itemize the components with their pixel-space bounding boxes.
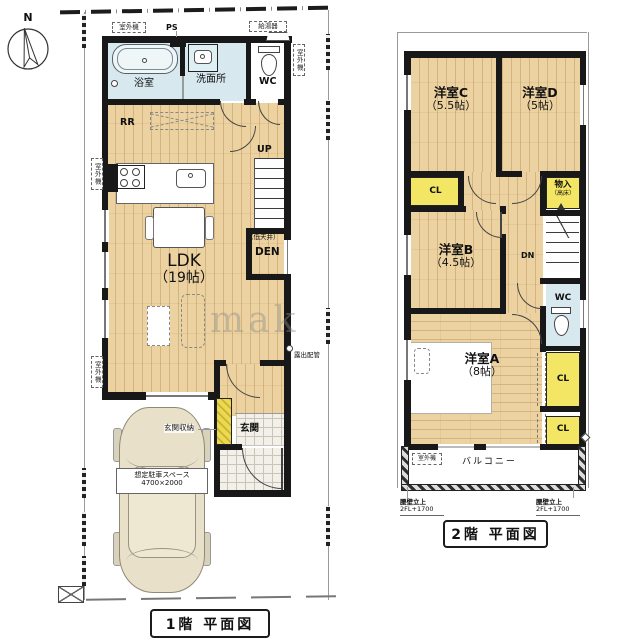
burner-icon — [132, 168, 140, 176]
water-heater-icon — [266, 32, 290, 41]
outdoor-unit-label: 室外機 — [293, 44, 305, 76]
wall — [102, 99, 220, 105]
site-boundary-east-seg — [326, 100, 330, 140]
wall — [500, 234, 506, 314]
wall — [540, 210, 586, 216]
shower-icon — [111, 80, 118, 87]
room-d-line1: 洋室D — [504, 86, 576, 100]
stair-arrow-icon — [557, 203, 565, 210]
chair-icon — [145, 216, 154, 240]
car-windshield-line — [126, 444, 198, 470]
washroom-label: 洗面所 — [196, 74, 226, 85]
outdoor-unit-label: 室外機 — [91, 356, 103, 388]
wall — [404, 51, 586, 58]
room-d-line2: （5帖） — [504, 100, 576, 113]
site-boundary-east-seg — [326, 506, 330, 546]
site-boundary-north — [60, 6, 332, 15]
balcony-label: バルコニー — [462, 457, 517, 467]
room-a-line1: 洋室A — [446, 352, 518, 366]
shoe-storage — [216, 398, 232, 445]
site-boundary-west-seg — [82, 14, 86, 48]
window — [438, 444, 474, 450]
room-d-label: 洋室D （5帖） — [504, 86, 576, 113]
ps-shaft — [170, 38, 186, 47]
ps-leader — [176, 31, 177, 37]
parapet-note-line2: 2FL+1700 — [400, 506, 444, 513]
den-note-label: （低天井） — [247, 234, 280, 241]
watermark: mak — [210, 300, 299, 341]
staircase-up — [254, 158, 286, 230]
floor2-outline — [397, 32, 587, 33]
ldk-label: LDK （19帖） — [144, 252, 224, 287]
wall — [246, 42, 251, 99]
window — [486, 444, 540, 450]
tv-board-icon — [147, 306, 170, 346]
exposed-pipe-label: 露出配管 — [294, 352, 320, 359]
sink-faucet-icon — [188, 173, 193, 178]
rr-label: RR — [120, 118, 135, 129]
genkan-storage-label: 玄関収納 — [164, 424, 194, 433]
parapet-note-left: 腰壁立上 2FL+1700 — [400, 499, 444, 516]
closet-folding-door — [537, 353, 546, 406]
floor2-outline — [397, 32, 398, 488]
balcony-parapet — [401, 484, 586, 491]
site-boundary-east-seg — [326, 34, 330, 70]
compass-icon — [6, 22, 50, 76]
site-boundary-south — [86, 595, 336, 600]
floor-plan-canvas: N — [0, 0, 620, 644]
wc1-label: WC — [259, 77, 276, 88]
wall — [214, 490, 291, 497]
window — [101, 252, 109, 288]
burner-icon — [120, 179, 128, 187]
parapet-leader — [407, 487, 408, 498]
burner-icon — [132, 179, 140, 187]
genkan-storage-leader — [198, 429, 216, 430]
pillow-icon — [414, 348, 430, 374]
bathtub-drain-icon — [142, 58, 147, 63]
wall — [496, 51, 502, 177]
cl-upper-label: CL — [546, 374, 580, 384]
room-b-label: 洋室B （4.5帖） — [420, 243, 492, 270]
den-label: DEN — [255, 247, 280, 259]
wall — [404, 206, 466, 212]
parapet-note-right: 腰壁立上 2FL+1700 — [536, 499, 580, 516]
water-heater-label: 給湯器 — [249, 21, 287, 32]
room-c-line2: （5.5帖） — [415, 100, 487, 113]
bath-label: 浴室 — [134, 78, 154, 89]
window — [403, 340, 411, 380]
window — [146, 392, 208, 400]
monoire-label: 物入 （高床） — [546, 181, 580, 198]
room-c-floor — [410, 57, 498, 173]
outdoor-unit-label: 室外機 — [91, 158, 103, 190]
wall — [542, 171, 586, 177]
closet-folding-door — [537, 414, 546, 443]
dining-table-icon — [153, 207, 205, 248]
cl-left-label: CL — [410, 186, 461, 196]
window — [101, 300, 109, 338]
wall — [180, 42, 185, 76]
room-a-label: 洋室A （8帖） — [446, 352, 518, 379]
wall — [540, 346, 586, 351]
wall — [102, 164, 118, 192]
toilet1-tank-icon — [258, 46, 280, 53]
chair-icon — [205, 216, 214, 240]
wc2-label: WC — [546, 293, 580, 303]
genkan-label: 玄関 — [240, 424, 259, 435]
door-leaf — [500, 212, 502, 238]
wall — [102, 36, 292, 43]
room-b-line1: 洋室B — [420, 243, 492, 257]
parapet-leader — [573, 487, 574, 498]
site-boundary-west-seg — [82, 556, 86, 586]
wall — [214, 360, 226, 366]
room-a-line2: （8帖） — [446, 366, 518, 379]
outdoor-unit-label: 室外機 — [112, 22, 146, 33]
window — [403, 75, 411, 110]
room-d-floor — [502, 57, 580, 173]
exposed-pipe-icon — [286, 345, 293, 352]
parking-space-label: 想定駐車スペース 4700×2000 — [116, 468, 208, 494]
compass: N — [6, 12, 50, 78]
floor2-title: 2階 平面図 — [443, 520, 548, 548]
front-door-leaf — [281, 448, 283, 490]
dn-label: DN — [521, 251, 534, 260]
vanity-faucet-icon — [200, 54, 205, 59]
outdoor-unit-label: 室外機 — [412, 453, 442, 465]
up-label: UP — [257, 145, 272, 156]
car-rear-window-line — [126, 548, 198, 574]
site-corner-marker — [58, 586, 84, 603]
floor1-title: 1階 平面図 — [150, 609, 270, 638]
genkan-step-line — [235, 413, 284, 414]
room-b-line2: （4.5帖） — [420, 257, 492, 270]
parapet-note-line2: 2FL+1700 — [536, 506, 580, 513]
burner-icon — [120, 168, 128, 176]
window — [284, 240, 291, 274]
kitchen-sink-icon — [176, 169, 206, 188]
wall — [540, 278, 586, 284]
window — [580, 85, 587, 125]
wall — [246, 274, 291, 280]
wall — [404, 308, 506, 314]
site-boundary-west-seg — [82, 468, 86, 498]
wall — [404, 171, 464, 177]
ldk-line1: LDK — [144, 252, 224, 271]
site-boundary-east-seg — [326, 308, 330, 344]
monoire-line2: （高床） — [546, 191, 580, 198]
cl-lower-label: CL — [546, 424, 580, 434]
room-c-line1: 洋室C — [415, 86, 487, 100]
ldk-line2: （19帖） — [144, 271, 224, 287]
bath-sliding-door — [182, 76, 184, 99]
window — [101, 210, 109, 242]
window — [580, 300, 587, 328]
parking-line2: 4700×2000 — [117, 480, 207, 488]
wall — [540, 406, 586, 412]
site-boundary-west-seg — [82, 512, 86, 546]
toilet2-tank-icon — [551, 307, 571, 314]
wall — [260, 360, 290, 366]
room-c-label: 洋室C （5.5帖） — [415, 86, 487, 113]
sofa-icon — [181, 294, 205, 348]
floor2-outline — [588, 32, 589, 488]
window — [403, 235, 411, 275]
